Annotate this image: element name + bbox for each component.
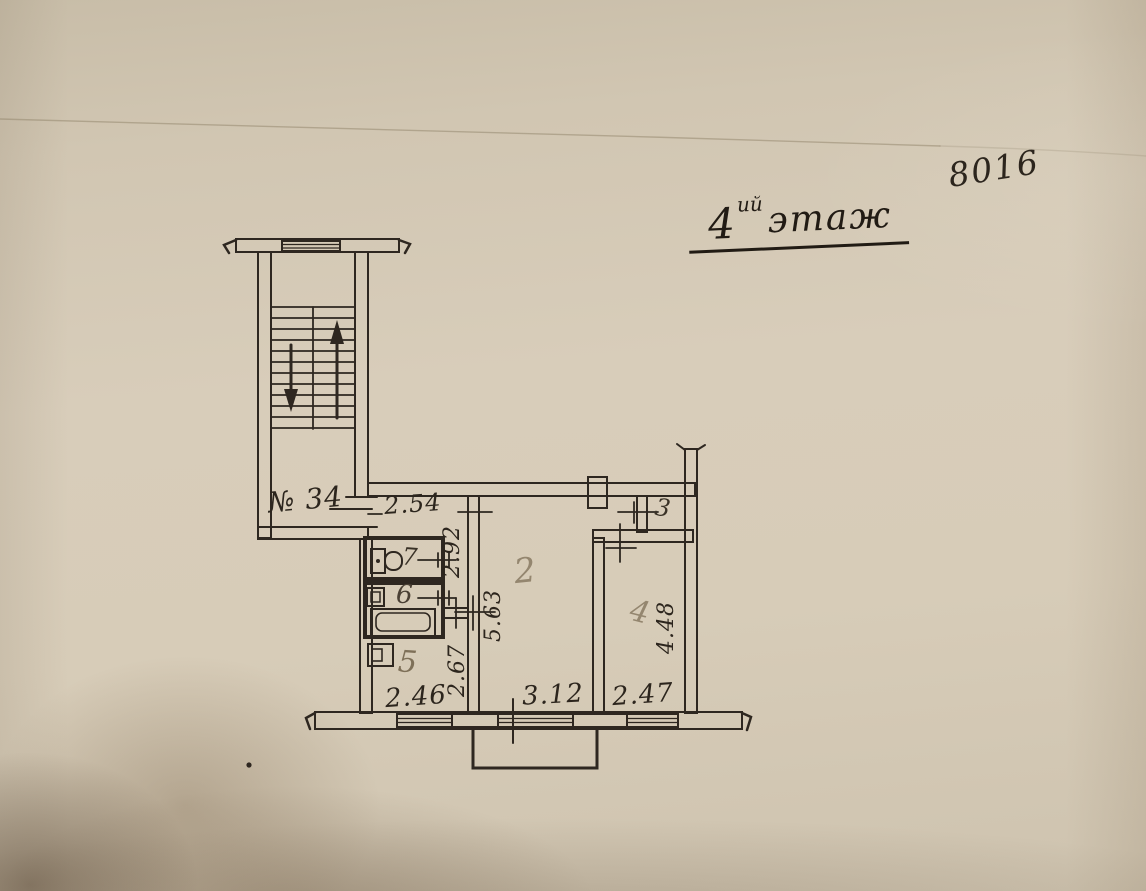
dim-room2-depth: 5.63 <box>483 589 505 642</box>
stairs-down-arrow-icon <box>284 345 298 412</box>
apartment-number-label: № 34 <box>267 483 344 517</box>
stair-treads <box>271 307 355 429</box>
crease-line <box>0 119 1146 156</box>
room-7-label: 7 <box>401 544 419 569</box>
room4-window <box>627 714 678 727</box>
scanned-paper: 8016 4 ий этаж № 34 2.54 2.92 5.63 2.67 … <box>0 0 1146 891</box>
floor-word: этаж <box>767 198 893 239</box>
floor-number: 4 <box>707 203 736 246</box>
sink-fixture <box>367 588 384 606</box>
dim-kitchen-width: 2.46 <box>384 682 448 712</box>
dim-room4-width: 2.47 <box>611 680 675 710</box>
floor-suffix: ий <box>736 192 763 217</box>
dim-corridor-length: 2.92 <box>442 525 464 578</box>
room-2-label: 2 <box>512 553 538 589</box>
dim-hallway-width: 2.54 <box>383 490 442 518</box>
room-3-label: 3 <box>653 495 672 521</box>
balcony <box>473 729 597 768</box>
room-5-label: 5 <box>397 647 419 678</box>
floor-title: 4 ий этаж <box>687 187 909 254</box>
floor-plan-drawing <box>0 0 1146 891</box>
dim-room4-depth: 4.48 <box>656 601 678 654</box>
stair-window <box>282 241 340 251</box>
toilet-fixture <box>371 549 402 573</box>
room-6-label: 6 <box>395 582 414 609</box>
kitchen-window <box>397 714 452 727</box>
stairs-up-arrow-icon <box>330 320 344 418</box>
dim-room2-width: 3.12 <box>521 680 584 709</box>
dim-kitchen-depth: 2.67 <box>447 644 469 697</box>
bathtub-fixture <box>371 609 435 636</box>
